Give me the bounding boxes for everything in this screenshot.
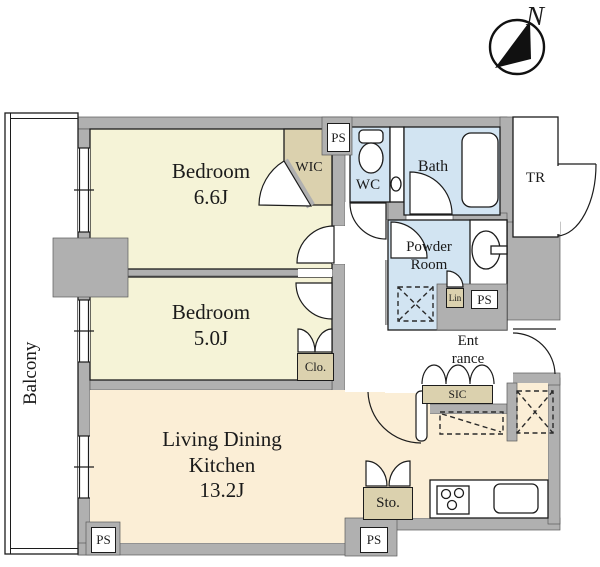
- balcony-label: Balcony: [19, 325, 49, 421]
- ps-box-bottom-left: PS: [91, 527, 116, 553]
- ldk-floor-d: [515, 383, 548, 415]
- pillar: [53, 238, 128, 297]
- toilet-tank-icon: [359, 130, 383, 143]
- bedroom2-label: Bedroom 5.0J: [90, 300, 332, 351]
- ps-box-top: PS: [327, 123, 350, 152]
- toilet-bowl-icon: [359, 143, 383, 173]
- bathtub-icon: [462, 133, 498, 207]
- ps-box-middle: PS: [471, 290, 498, 309]
- powder-room-label: Powder Room: [388, 238, 470, 275]
- hand-basin-icon: [391, 177, 401, 191]
- door-entrance: [513, 329, 556, 374]
- compass-north-label: N: [518, 0, 552, 33]
- storage-box: Sto.: [363, 487, 413, 520]
- sic-box: SIC: [422, 385, 493, 404]
- entrance-label: Ent rance: [424, 332, 512, 369]
- ldk-label: Living Dining Kitchen 13.2J: [90, 427, 354, 504]
- ps-box-bottom-middle: PS: [360, 527, 388, 553]
- kitchen-sink-icon: [494, 484, 538, 513]
- wic-label: WIC: [286, 159, 332, 176]
- door-trunk-room: [558, 164, 596, 236]
- trunk-room-label: TR: [513, 169, 558, 187]
- closet-box: Clo.: [297, 353, 334, 381]
- faucet-icon: [491, 246, 507, 254]
- wc-label: WC: [347, 176, 389, 194]
- linen-box: Lin: [446, 288, 464, 308]
- floor-plan: N Balcony Bedroom 6.6J Bedroom 5.0J Livi…: [0, 0, 600, 567]
- bath-label: Bath: [404, 157, 462, 177]
